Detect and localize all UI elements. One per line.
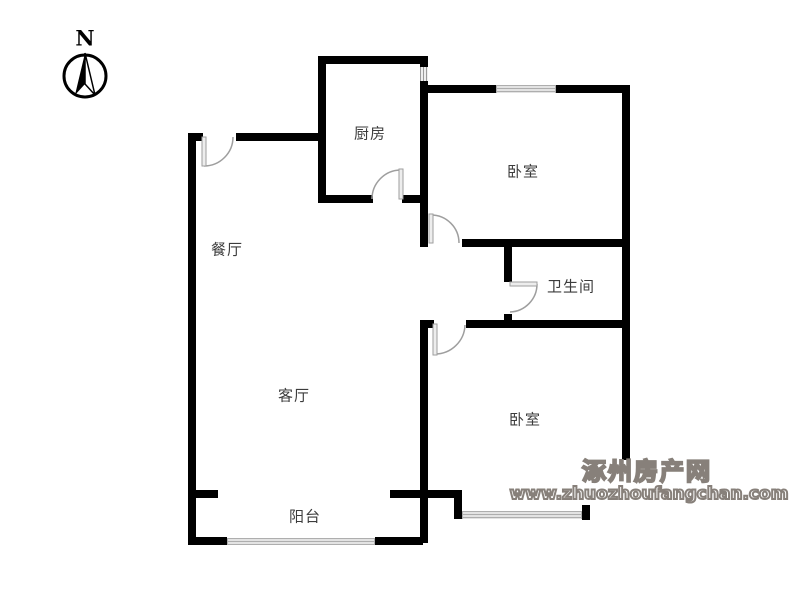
window-icon-balcony	[227, 538, 375, 545]
wall-kitchen-top	[318, 56, 428, 64]
room-label-bathroom: 卫生间	[547, 276, 595, 297]
wall-balcony-bottom-b	[375, 537, 423, 545]
bedroom-bottom-door-arc-icon	[433, 324, 465, 355]
north-arrow-icon	[64, 53, 106, 97]
wall-bathroom-left-upper	[504, 247, 512, 282]
wall-bedroom-bottom-stub	[582, 505, 590, 520]
wall-mid-south-b	[466, 320, 630, 328]
wall-bedroom-top-north-b	[556, 85, 630, 93]
window-icon-bedroom-top	[496, 85, 556, 93]
room-label-living: 客厅	[278, 385, 310, 406]
wall-central-lower	[420, 320, 428, 543]
wall-bedroom-top-north-a	[420, 85, 496, 93]
wall-right	[622, 85, 630, 460]
entry-door-arc-icon	[202, 137, 233, 166]
room-label-dining: 餐厅	[211, 239, 243, 260]
bedroom-top-door-arc-icon	[429, 214, 459, 243]
wall-kitchen-left	[318, 56, 326, 203]
wall-balcony-stub-left	[188, 490, 218, 498]
floor-plan-canvas: N 厨房 卧室 餐厅 卫生间 客厅 卧室 阳台 涿州房产网 www.zhuozh…	[0, 0, 800, 600]
wall-bedroom-top-south	[462, 239, 630, 247]
wall-top-right-of-door	[236, 133, 318, 141]
room-label-balcony: 阳台	[289, 506, 321, 527]
room-label-kitchen: 厨房	[354, 123, 386, 144]
room-label-bedroom-top: 卧室	[507, 161, 539, 182]
flue-vent-icon	[420, 67, 428, 81]
kitchen-door-arc-icon	[372, 169, 403, 199]
compass-north-label: N	[75, 26, 94, 51]
wall-kitchen-bottom-left	[318, 195, 373, 203]
wall-kitchen-right-upper	[420, 56, 428, 67]
bathroom-door-arc-icon	[510, 282, 537, 312]
watermark-site-name: 涿州房产网	[582, 452, 712, 487]
window-icon-bedroom-bottom	[462, 511, 582, 519]
wall-left	[188, 133, 196, 545]
watermark-site-url: www.zhuozhoufangchan.com	[510, 484, 789, 504]
wall-balcony-bottom-a	[188, 537, 227, 545]
wall-top-left-of-door	[188, 133, 203, 141]
wall-kitchen-right-main	[420, 81, 428, 247]
wall-kitchen-bottom-right	[402, 195, 428, 203]
door-and-compass-layer	[0, 0, 800, 600]
room-label-bedroom-bottom: 卧室	[509, 409, 541, 430]
wall-bedroom-bottom-step-v	[454, 490, 462, 519]
